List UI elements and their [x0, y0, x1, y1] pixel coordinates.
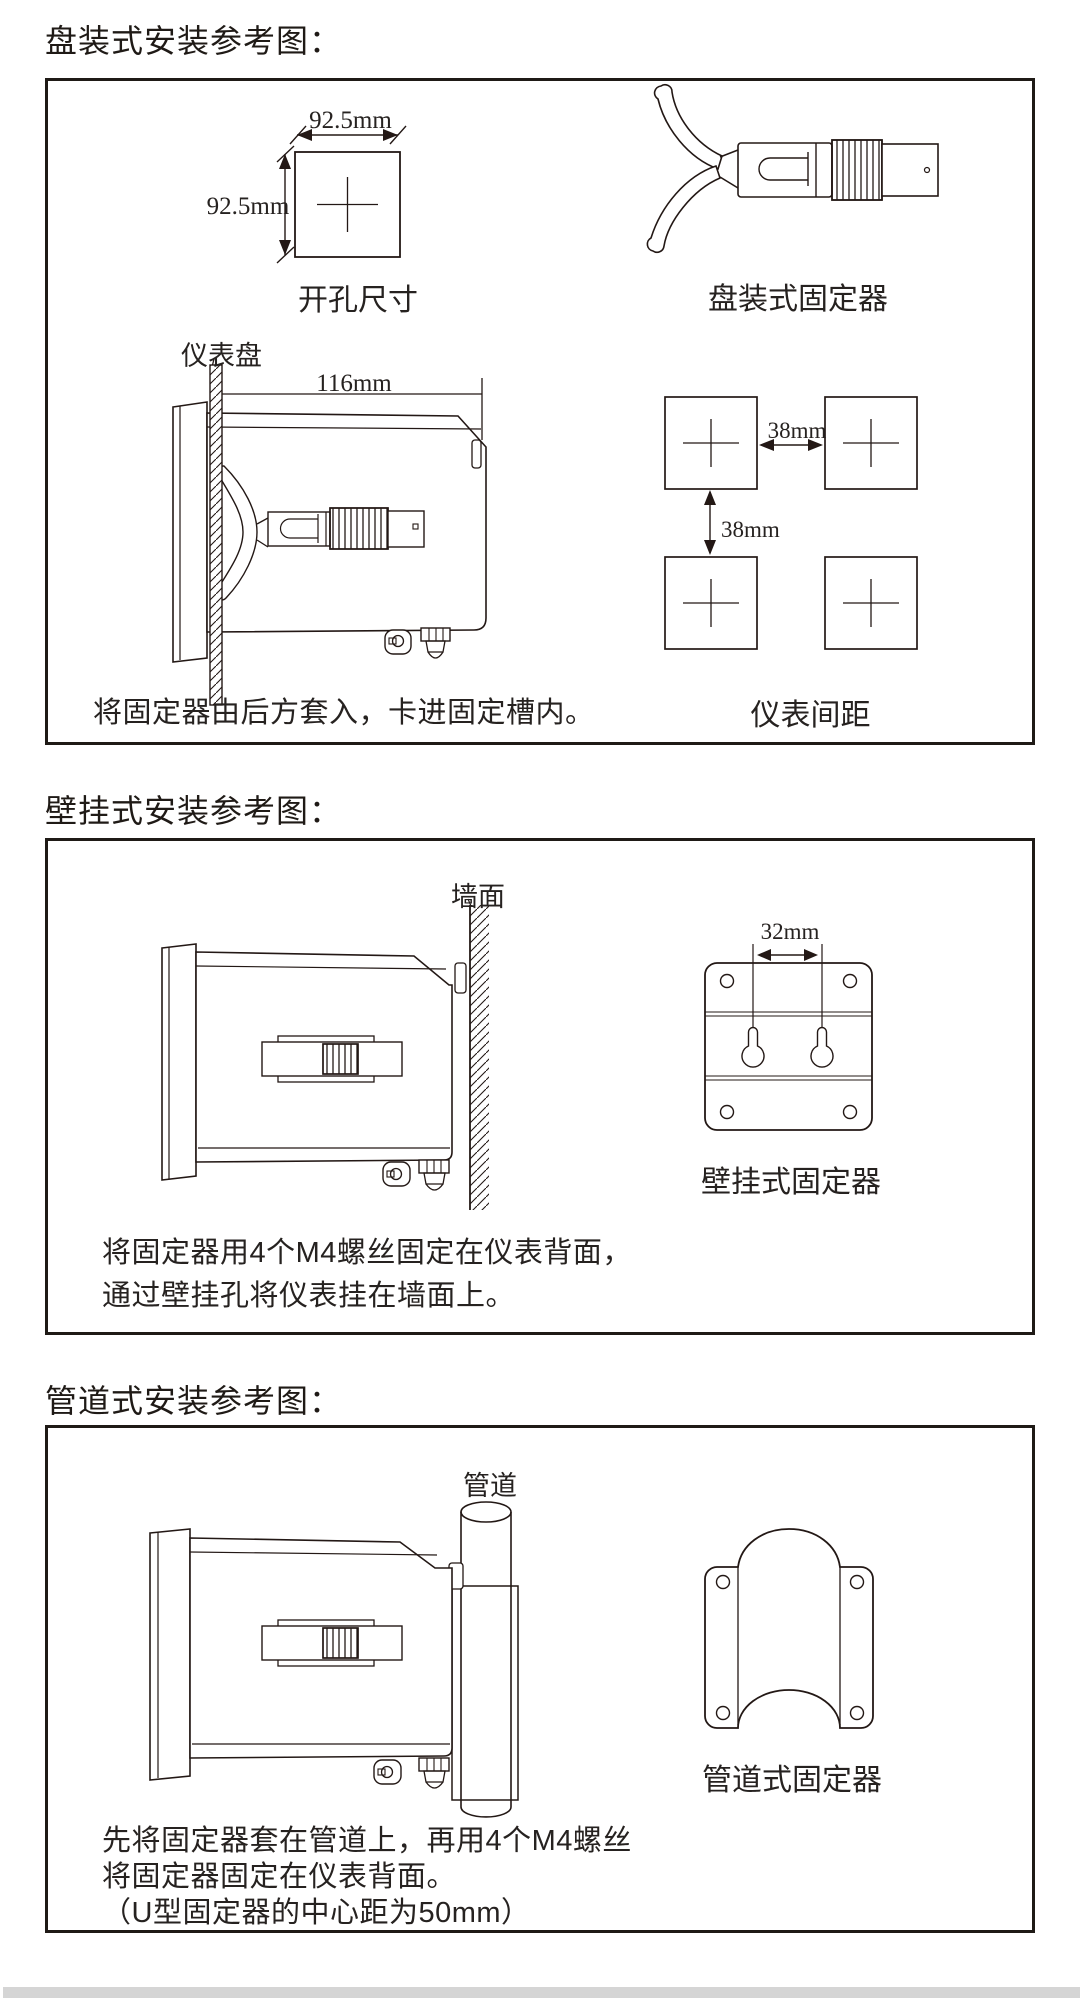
panel-mount-figure-box: 92.5mm 92.5mm 开孔尺寸 盘装式固定器 仪表盘 116mm 38mm…	[45, 78, 1035, 745]
installation-manual-page: { "colors": { "ink": "#231815", "footer_…	[0, 0, 1080, 1998]
wall-label: 墙面	[430, 875, 526, 914]
section-title-panel-mount: 盘装式安装参考图：	[45, 16, 342, 62]
panel-fixer-label: 盘装式固定器	[698, 274, 898, 318]
wall-side-view-drawing	[162, 899, 489, 1210]
gap-h-dim: 38mm	[752, 418, 842, 444]
section-title-pipe-mount: 管道式安装参考图：	[45, 1376, 342, 1422]
panel-side-view-drawing	[173, 359, 486, 705]
cutout-width-dim: 92.5mm	[300, 107, 401, 135]
pipe-fixer-label: 管道式固定器	[692, 1755, 892, 1799]
cutout-label: 开孔尺寸	[298, 275, 408, 319]
wall-fixer-drawing	[705, 944, 872, 1130]
pipe-side-view-drawing	[150, 1502, 518, 1817]
wall-hole-dim: 32mm	[740, 919, 840, 945]
panel-fixer-drawing	[647, 85, 938, 253]
wall-mount-figure-box: 墙面 32mm 壁挂式固定器 将固定器用4个M4螺丝固定在仪表背面， 通过壁挂孔…	[45, 838, 1035, 1335]
gap-v-dim: 38mm	[721, 517, 780, 543]
panel-label: 仪表盘	[181, 334, 262, 373]
cutout-height-dim: 92.5mm	[198, 193, 298, 221]
pipe-mount-figure-box: 管道 管道式固定器 先将固定器套在管道上，再用4个M4螺丝 将固定器固定在仪表背…	[45, 1425, 1035, 1933]
section-title-wall-mount: 壁挂式安装参考图：	[45, 786, 342, 832]
page-bottom-bar	[3, 1987, 1080, 1998]
pipe-caption-line3: （U型固定器的中心距为50mm）	[102, 1889, 531, 1931]
panel-caption: 将固定器由后方套入，卡进固定槽内。	[93, 689, 595, 731]
pipe-fixer-drawing	[705, 1529, 873, 1728]
wall-caption-line1: 将固定器用4个M4螺丝固定在仪表背面，	[102, 1229, 632, 1271]
wall-caption-line2: 通过壁挂孔将仪表挂在墙面上。	[102, 1272, 515, 1314]
wall-fixer-label: 壁挂式固定器	[691, 1157, 891, 1201]
pipe-label: 管道	[440, 1464, 540, 1503]
panel-mount-line-art	[48, 81, 1032, 742]
spacing-label: 仪表间距	[708, 690, 913, 734]
depth-dim: 116mm	[304, 370, 404, 398]
